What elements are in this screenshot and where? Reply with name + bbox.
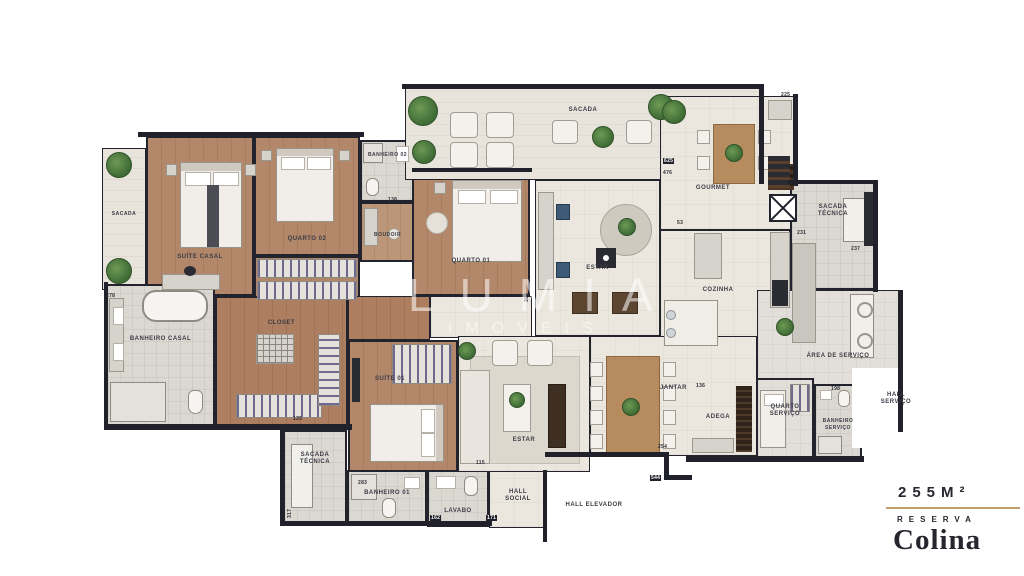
room-label: GOURMET xyxy=(629,185,797,192)
room-label: SACADA xyxy=(406,107,760,114)
dimension-label: 225 xyxy=(781,92,790,98)
plant-icon xyxy=(618,218,636,236)
vanity-desk xyxy=(162,274,220,290)
wall-segment xyxy=(898,290,903,432)
room-hall-social: HALL SOCIAL xyxy=(489,470,547,528)
dimension-label: 125 xyxy=(293,416,302,422)
nightstand xyxy=(339,150,350,161)
wall-segment xyxy=(788,180,878,184)
headboard xyxy=(436,405,443,461)
room-label: JANTAR xyxy=(591,385,756,392)
headboard xyxy=(453,181,521,189)
dimension-label: 53 xyxy=(677,220,683,226)
dimension-label: 317 xyxy=(287,509,293,518)
room-label: QUARTO 02 xyxy=(256,236,358,243)
dimension-label: 278 xyxy=(106,293,115,299)
badge-divider xyxy=(886,507,1020,509)
wardrobe-row xyxy=(257,259,357,278)
coffee-station xyxy=(768,156,790,188)
headboard xyxy=(181,163,241,171)
wardrobe-column xyxy=(318,334,340,406)
bar-sink xyxy=(768,100,792,120)
sink-basin xyxy=(436,476,456,489)
shower-stall xyxy=(818,436,842,454)
dimension-label: 476 xyxy=(663,170,672,176)
toilet xyxy=(188,390,203,414)
nightstand xyxy=(434,182,446,194)
wall-segment xyxy=(664,475,692,480)
bed-quarto-servico xyxy=(760,390,786,448)
pillow xyxy=(281,157,305,170)
dining-chair xyxy=(663,362,676,377)
dimension-label: 625 xyxy=(663,158,674,164)
room-label: SACADA TÉCNICA xyxy=(285,452,345,466)
dimension-label: 115 xyxy=(476,460,485,466)
dimension-label: 283 xyxy=(358,480,367,486)
room-label: BANHEIRO 01 xyxy=(349,490,425,497)
room-label: ÁREA DE SERVIÇO xyxy=(774,353,902,360)
dining-chair xyxy=(663,410,676,425)
sink-basin xyxy=(404,477,420,489)
dining-chair xyxy=(697,156,710,170)
service-counter xyxy=(792,243,816,343)
room-label: ADEGA xyxy=(682,414,754,421)
sofa xyxy=(460,370,490,464)
plant-icon xyxy=(725,144,743,162)
double-vanity xyxy=(109,298,124,372)
room-label: BANHEIRO CASAL xyxy=(108,336,213,343)
lounge-chair xyxy=(450,112,478,138)
pillow xyxy=(421,433,435,457)
toilet xyxy=(366,178,379,196)
dimension-label: 138 xyxy=(388,197,397,203)
dimension-label: 171 xyxy=(486,515,497,521)
room-label: LAVABO xyxy=(429,508,487,515)
plant-icon xyxy=(458,342,476,360)
room-hall-servico: HALL SERVIÇO xyxy=(852,368,940,448)
closet-island xyxy=(256,334,294,364)
bed-suite-01 xyxy=(370,404,444,462)
room-label: BANHEIRO SERVIÇO xyxy=(816,418,860,432)
wall-segment xyxy=(138,132,364,137)
wardrobe-row xyxy=(236,394,322,418)
wall-segment xyxy=(686,456,864,462)
dimension-label: 390 xyxy=(524,293,530,302)
nightstand xyxy=(166,164,177,176)
table-decor xyxy=(603,255,609,261)
armchair-brown xyxy=(572,292,598,314)
plant-icon xyxy=(622,398,640,416)
dining-chair xyxy=(590,410,603,425)
wall-segment xyxy=(402,84,764,89)
wall-segment xyxy=(412,168,532,172)
kitchen-island xyxy=(664,300,718,346)
dimension-label: 237 xyxy=(851,246,860,252)
armchair xyxy=(527,340,553,366)
dining-chair xyxy=(590,362,603,377)
washer-door xyxy=(857,302,873,318)
room-label: BOUDOIR xyxy=(362,232,413,239)
dimension-label: 231 xyxy=(797,230,806,236)
pillow xyxy=(490,190,518,204)
toilet xyxy=(382,498,396,518)
nightstand xyxy=(245,164,256,176)
room-label: ESTAR xyxy=(459,437,589,444)
sink-basin xyxy=(113,307,124,325)
wall-segment xyxy=(873,180,878,292)
room-closet-ext xyxy=(348,296,430,340)
wardrobe-row xyxy=(257,281,357,300)
armchair xyxy=(626,120,652,144)
bar-stool xyxy=(666,328,676,338)
room-label: HALL SERVIÇO xyxy=(852,392,940,406)
plant-icon xyxy=(776,318,794,336)
sink-basin xyxy=(113,343,124,361)
bed-quarto-02 xyxy=(276,148,334,222)
bar-stool xyxy=(666,310,676,320)
room-label: CLOSET xyxy=(217,320,346,327)
wall-segment xyxy=(104,424,352,430)
console-desk xyxy=(538,192,554,290)
toilet xyxy=(838,390,850,407)
pillow xyxy=(458,190,486,204)
room-label: COZINHA xyxy=(647,287,789,294)
room-label: QUARTO 01 xyxy=(414,258,528,265)
dimension-label: 198 xyxy=(831,386,840,392)
boudoir-vanity xyxy=(364,208,378,246)
dimension-label: 544 xyxy=(650,475,661,481)
dimension-label: 162 xyxy=(430,515,441,521)
wall-segment xyxy=(793,94,798,186)
pillow xyxy=(213,172,239,186)
bed-quarto-01 xyxy=(452,180,522,262)
desk-chair-blue xyxy=(556,204,570,220)
lounge-chair xyxy=(486,142,514,168)
pillow xyxy=(421,409,435,433)
pillow xyxy=(307,157,331,170)
room-label: SACADA xyxy=(103,211,145,218)
plant-icon xyxy=(106,152,132,178)
plant-icon xyxy=(592,126,614,148)
room-label: SUÍTE 01 xyxy=(324,376,456,383)
wall-segment xyxy=(759,84,764,184)
pillow xyxy=(185,172,211,186)
dimension-label: 254 xyxy=(658,444,667,450)
room-label: QUARTO SERVIÇO xyxy=(758,404,812,418)
wall-segment xyxy=(280,428,284,526)
armchair-brown xyxy=(612,292,638,314)
bathtub xyxy=(142,290,208,322)
badge-colina: Colina xyxy=(893,524,981,557)
nightstand xyxy=(261,150,272,161)
room-label: HALL ELEVADOR xyxy=(545,502,643,509)
room-label: SACADA TÉCNICA xyxy=(792,204,874,218)
armchair xyxy=(552,120,578,144)
lounge-chair xyxy=(486,112,514,138)
lounge-chair xyxy=(450,142,478,168)
room-label: BANHEIRO 02 xyxy=(362,152,413,159)
bed-suite-casal xyxy=(180,162,242,248)
area-badge: 255M² xyxy=(898,484,971,501)
toilet xyxy=(464,476,478,496)
armchair xyxy=(492,340,518,366)
headboard xyxy=(277,149,333,156)
wall-segment xyxy=(545,452,669,457)
wall-segment xyxy=(104,282,108,430)
desk-chair xyxy=(184,266,196,276)
room-label: ESTAR xyxy=(536,265,659,272)
washer-dryer-column xyxy=(850,294,874,358)
washer-door xyxy=(857,333,873,349)
dining-chair xyxy=(590,434,603,449)
hall-intimo xyxy=(430,296,532,338)
round-rug xyxy=(426,212,448,234)
adega-counter xyxy=(692,438,734,453)
plant-icon xyxy=(106,258,132,284)
room-label: SUÍTE CASAL xyxy=(148,254,252,261)
plant-icon xyxy=(412,140,436,164)
badge-reserva: RESERVA xyxy=(897,515,977,524)
wall-segment xyxy=(280,521,492,526)
bed-runner xyxy=(207,185,219,247)
room-hall-elevador: HALL ELEVADOR xyxy=(545,484,643,542)
shower-stall xyxy=(110,382,166,422)
kitchen-cabinets xyxy=(694,233,722,279)
dining-chair xyxy=(697,130,710,144)
floor-plan-canvas: SACADA SUÍTE CASAL QUARTO 02 BANHEIRO 02… xyxy=(0,0,1024,576)
plant-icon xyxy=(509,392,525,408)
room-label: HALL SOCIAL xyxy=(490,489,546,503)
